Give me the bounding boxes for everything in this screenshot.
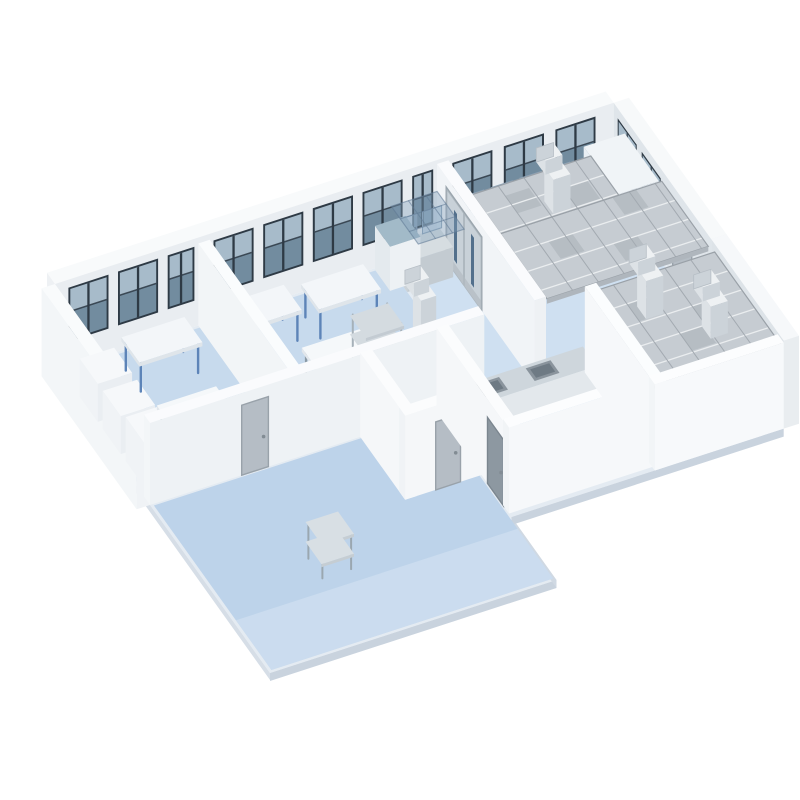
isometric-floorplan-canvas xyxy=(0,0,800,800)
back-wall-window xyxy=(332,203,334,254)
hvac-duct-back-riser xyxy=(553,174,570,214)
door-utility-handle xyxy=(454,451,458,455)
back-wall-window xyxy=(180,253,182,304)
hvac-duct-front-1-riser xyxy=(646,276,663,320)
floorplan-3d-render xyxy=(0,0,800,800)
cleanroom-wall-front xyxy=(649,376,655,470)
back-wall-window xyxy=(282,220,284,271)
kitchen-doorway-handle xyxy=(499,471,503,475)
hvac-duct-front-2-riser xyxy=(711,301,728,339)
back-wall-window xyxy=(87,283,89,334)
kitchen-wall-front xyxy=(503,419,509,513)
cleanroom-wall-right xyxy=(784,336,799,429)
utility-wall-front xyxy=(399,407,405,499)
back-wall-window xyxy=(137,267,139,318)
corridor-wall xyxy=(144,415,150,505)
door-corridor-handle xyxy=(262,435,266,439)
steel-double-door-window xyxy=(471,234,474,288)
